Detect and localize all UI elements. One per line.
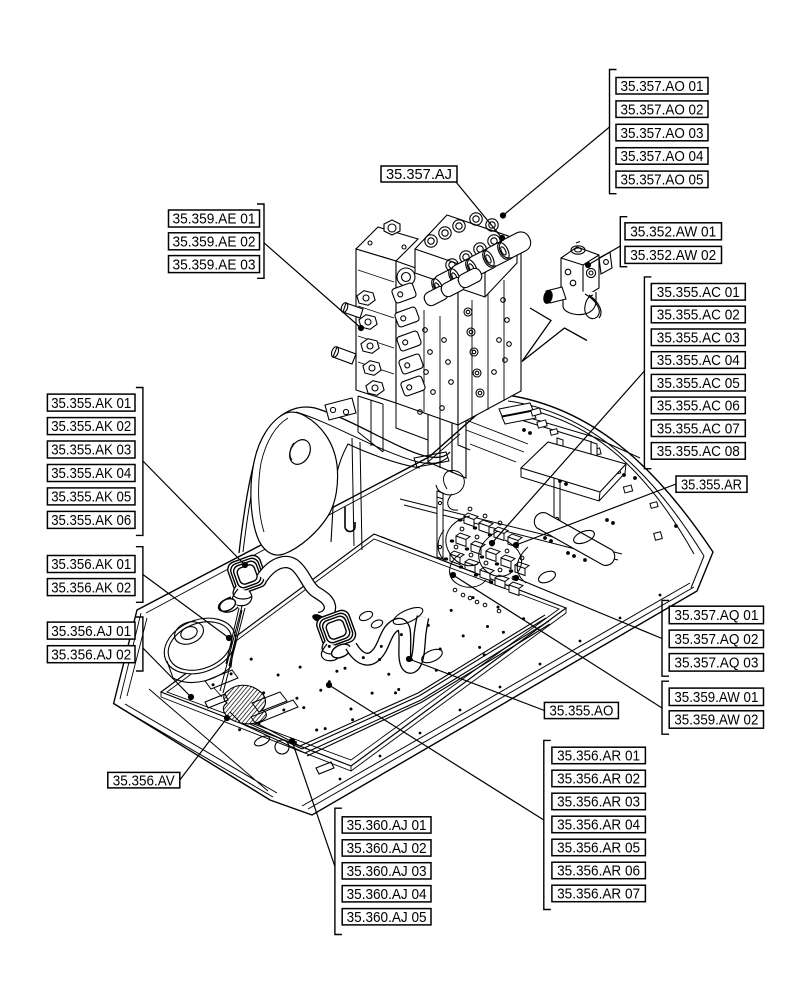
svg-text:35.352.AW 02: 35.352.AW 02 [630, 247, 716, 264]
svg-text:35.357.AO 05: 35.357.AO 05 [621, 172, 704, 189]
svg-text:35.355.AR: 35.355.AR [681, 476, 742, 493]
svg-text:35.360.AJ 04: 35.360.AJ 04 [347, 886, 427, 903]
svg-text:35.360.AJ 01: 35.360.AJ 01 [347, 817, 427, 834]
svg-text:35.357.AQ 03: 35.357.AQ 03 [674, 655, 758, 672]
svg-text:35.360.AJ 05: 35.360.AJ 05 [347, 909, 427, 926]
svg-text:35.355.AK 05: 35.355.AK 05 [51, 489, 131, 506]
svg-text:35.355.AC 06: 35.355.AC 06 [657, 398, 740, 415]
svg-text:35.356.AK 01: 35.356.AK 01 [51, 556, 131, 573]
svg-text:35.356.AJ 01: 35.356.AJ 01 [51, 623, 131, 640]
svg-text:35.352.AW 01: 35.352.AW 01 [630, 224, 716, 241]
svg-text:35.357.AJ: 35.357.AJ [386, 166, 452, 183]
svg-text:35.355.AK 01: 35.355.AK 01 [51, 395, 131, 412]
svg-text:35.355.AC 04: 35.355.AC 04 [657, 352, 740, 369]
svg-text:35.359.AE 02: 35.359.AE 02 [173, 234, 256, 251]
svg-text:35.357.AO 04: 35.357.AO 04 [621, 148, 704, 165]
svg-text:35.355.AK 02: 35.355.AK 02 [51, 418, 131, 435]
svg-text:35.360.AJ 03: 35.360.AJ 03 [347, 863, 427, 880]
svg-text:35.355.AK 06: 35.355.AK 06 [51, 512, 131, 529]
svg-text:35.356.AV: 35.356.AV [113, 772, 175, 789]
svg-text:35.355.AC 01: 35.355.AC 01 [657, 284, 740, 301]
svg-text:35.355.AC 05: 35.355.AC 05 [657, 375, 740, 392]
svg-text:35.356.AR 01: 35.356.AR 01 [557, 748, 640, 765]
svg-text:35.359.AW 02: 35.359.AW 02 [674, 712, 758, 729]
svg-text:35.360.AJ 02: 35.360.AJ 02 [347, 840, 427, 857]
svg-text:35.355.AC 02: 35.355.AC 02 [657, 307, 740, 324]
svg-text:35.356.AJ 02: 35.356.AJ 02 [51, 646, 131, 663]
svg-text:35.356.AR 05: 35.356.AR 05 [557, 840, 640, 857]
svg-text:35.355.AO: 35.355.AO [549, 703, 613, 720]
svg-text:35.355.AK 04: 35.355.AK 04 [51, 465, 131, 482]
svg-text:35.357.AO 02: 35.357.AO 02 [621, 101, 704, 118]
svg-text:35.357.AO 01: 35.357.AO 01 [621, 78, 704, 95]
svg-text:35.359.AW 01: 35.359.AW 01 [674, 689, 758, 706]
svg-text:35.355.AC 03: 35.355.AC 03 [657, 330, 740, 347]
svg-text:35.355.AC 07: 35.355.AC 07 [657, 420, 740, 437]
svg-text:35.356.AR 02: 35.356.AR 02 [557, 771, 640, 788]
svg-text:35.356.AR 04: 35.356.AR 04 [557, 817, 640, 834]
svg-text:35.356.AR 07: 35.356.AR 07 [557, 886, 640, 903]
svg-text:35.355.AC 08: 35.355.AC 08 [657, 443, 740, 460]
svg-text:35.357.AO 03: 35.357.AO 03 [621, 125, 704, 142]
svg-text:35.359.AE 01: 35.359.AE 01 [173, 211, 256, 228]
svg-text:35.359.AE 03: 35.359.AE 03 [173, 256, 256, 273]
svg-text:35.356.AR 03: 35.356.AR 03 [557, 794, 640, 811]
svg-text:35.356.AK 02: 35.356.AK 02 [51, 579, 131, 596]
svg-text:35.357.AQ 02: 35.357.AQ 02 [674, 631, 758, 648]
svg-text:35.356.AR 06: 35.356.AR 06 [557, 863, 640, 880]
svg-text:35.357.AQ 01: 35.357.AQ 01 [674, 607, 758, 624]
svg-text:35.355.AK 03: 35.355.AK 03 [51, 442, 131, 459]
